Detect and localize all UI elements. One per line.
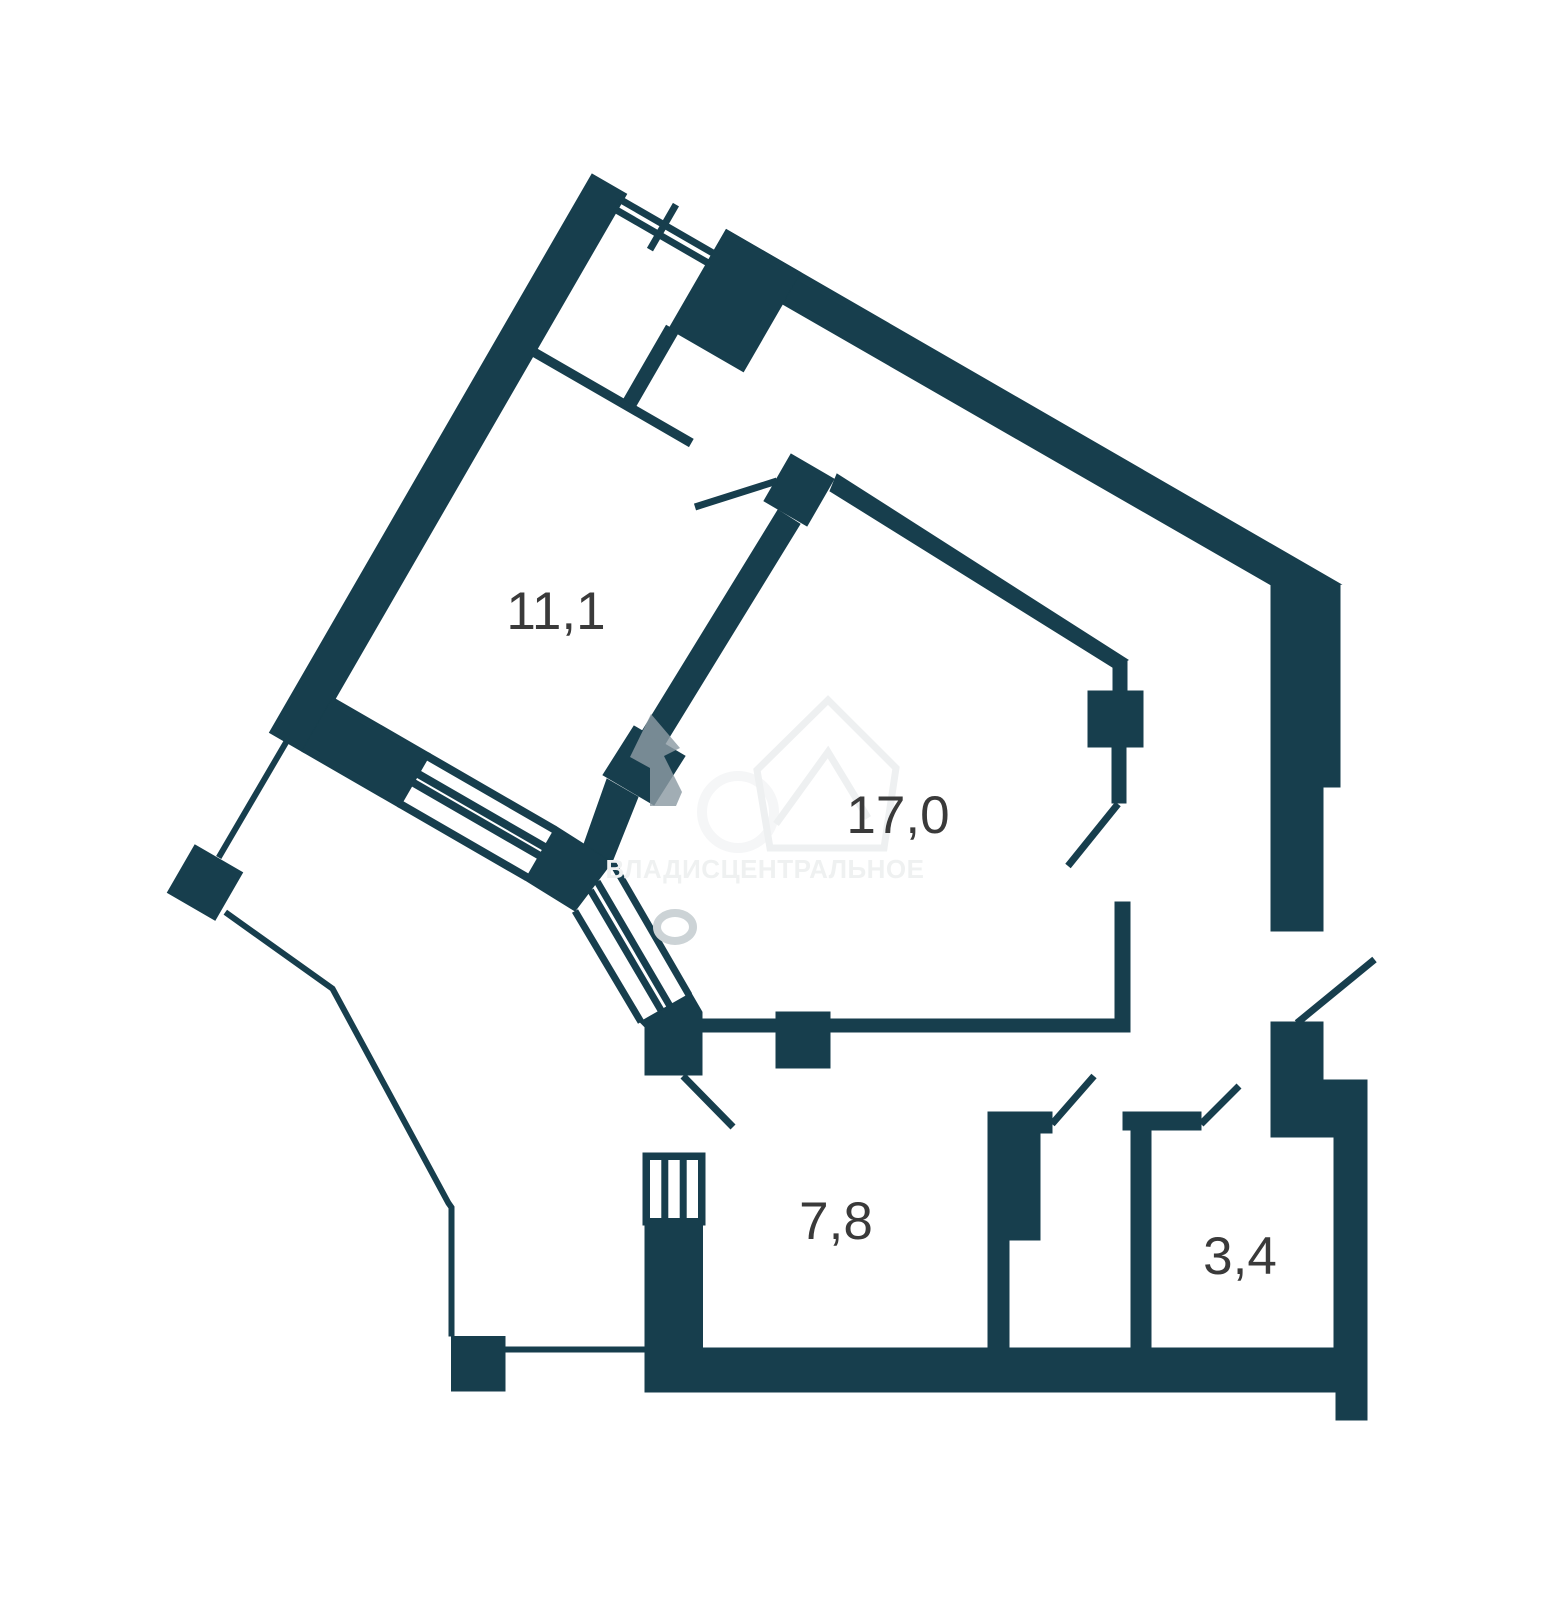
svg-text:ВЛАДИСЦЕНТРАЛЬНОЕ: ВЛАДИСЦЕНТРАЛЬНОЕ bbox=[605, 854, 924, 884]
svg-text:11,1: 11,1 bbox=[506, 582, 605, 641]
svg-text:7,8: 7,8 bbox=[799, 1192, 873, 1251]
svg-text:17,0: 17,0 bbox=[846, 786, 949, 845]
svg-text:3,4: 3,4 bbox=[1203, 1227, 1277, 1286]
